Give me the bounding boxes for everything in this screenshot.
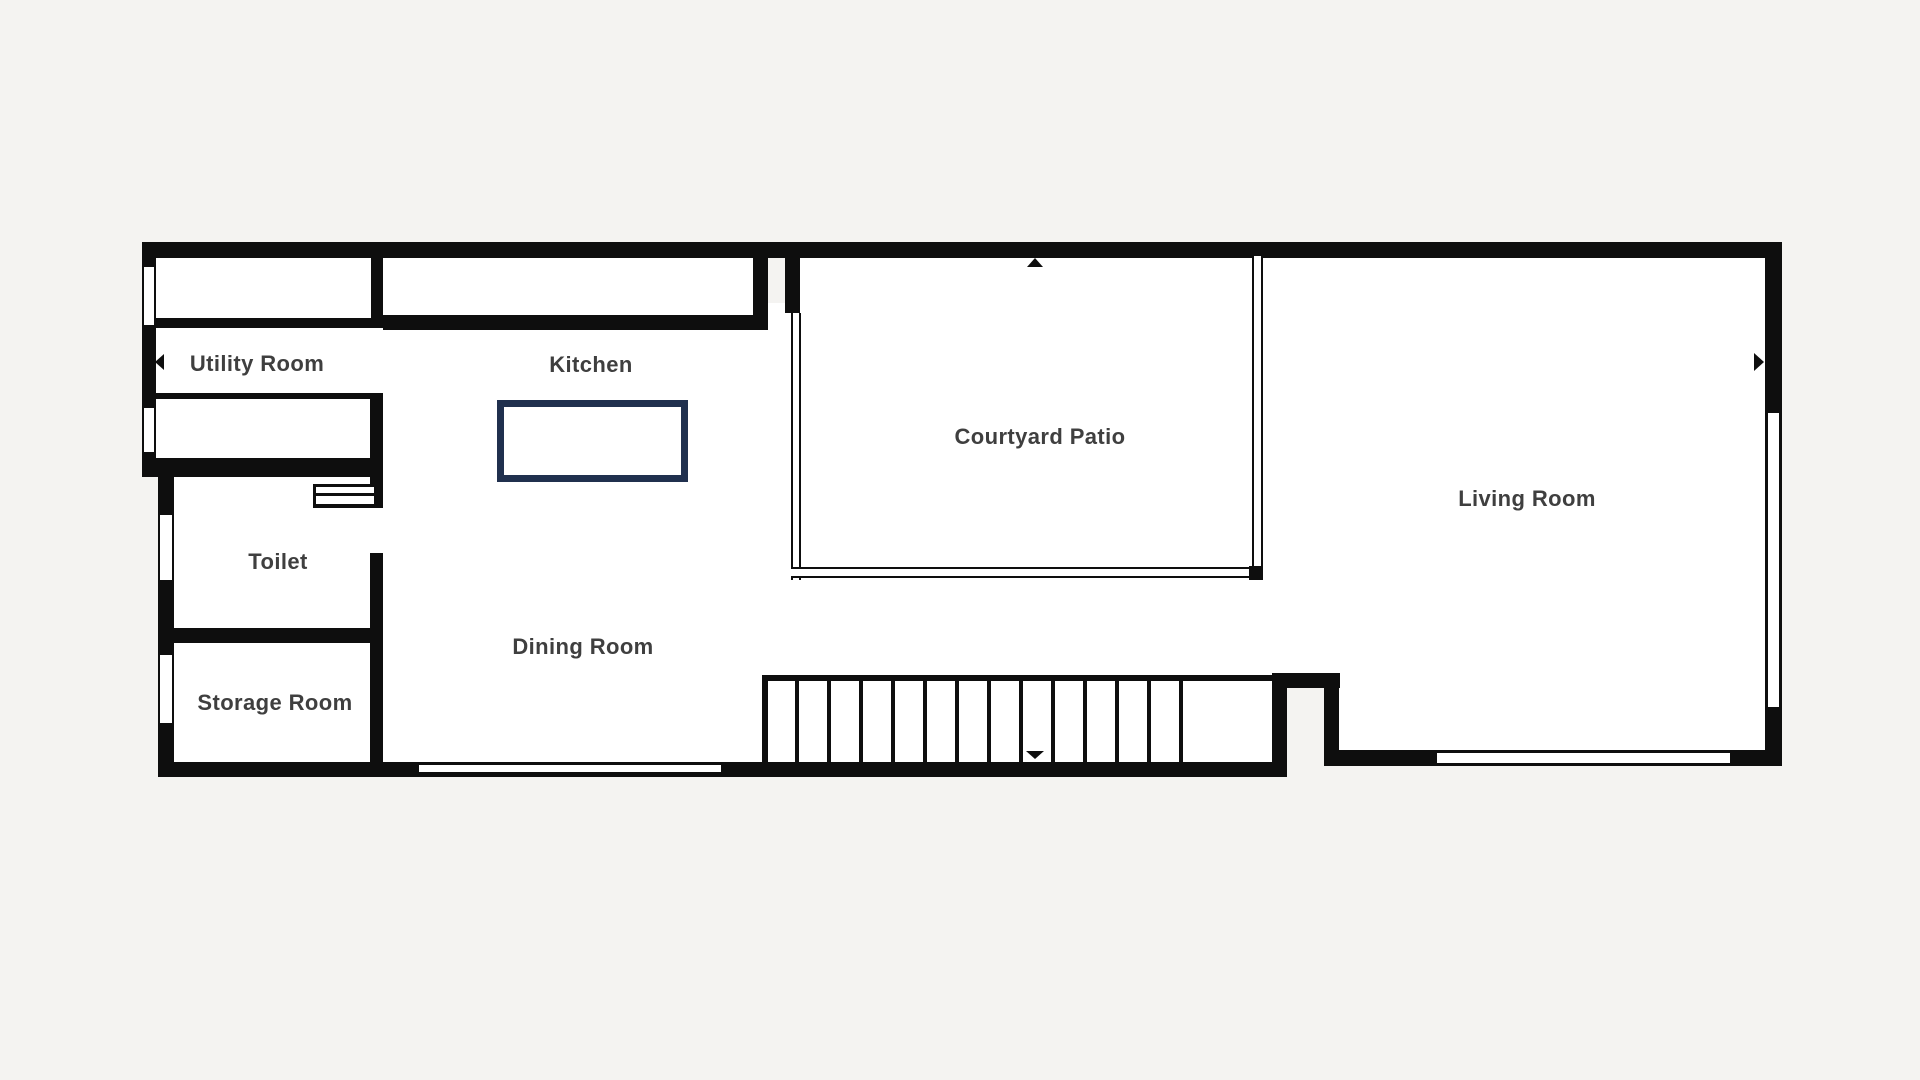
- floor-plan: Utility Room Kitchen Courtyard Patio Liv…: [0, 0, 1920, 1080]
- storage-room-label: Storage Room: [197, 690, 352, 716]
- counter-divider: [371, 242, 383, 328]
- dining-room-label: Dining Room: [512, 634, 653, 660]
- kitchen-island: [497, 400, 688, 482]
- wall-toilet-storage-divider: [158, 628, 383, 643]
- courtyard-glass-bottom: [791, 567, 1263, 578]
- courtyard-glass-left: [791, 313, 801, 580]
- living-room-label: Living Room: [1458, 486, 1596, 512]
- courtyard-entry-arrow-icon: [1027, 258, 1043, 267]
- living-entry-arrow-icon: [1754, 353, 1764, 371]
- stair-tread: [827, 681, 831, 762]
- wall-toilet-top: [142, 458, 383, 477]
- window-utility-left-2: [142, 406, 156, 454]
- window-toilet-left: [158, 513, 174, 582]
- toilet-sink-basin-bottom: [316, 496, 374, 504]
- courtyard-patio-label: Courtyard Patio: [954, 424, 1125, 450]
- stair-tread: [1051, 681, 1055, 762]
- window-dining-bottom: [417, 763, 723, 774]
- stair-tread: [1179, 681, 1183, 762]
- wall-post-slot-right: [785, 242, 800, 313]
- courtyard-glass-right: [1252, 256, 1263, 580]
- toilet-sink-basin-top: [316, 487, 374, 493]
- wall-notch-bridge: [1272, 673, 1340, 688]
- wall-toilet-right: [370, 553, 383, 628]
- window-utility-left: [142, 265, 156, 327]
- counter-kitchen-bottom-edge: [383, 315, 768, 330]
- wall-storage-right: [370, 643, 383, 762]
- utility-room-label: Utility Room: [190, 351, 324, 377]
- utility-entry-arrow-icon: [155, 354, 164, 370]
- stair-tread: [1019, 681, 1023, 762]
- wall-notch-right: [1324, 688, 1339, 766]
- wall-left-lower: [158, 458, 174, 777]
- wall-top: [142, 242, 1782, 258]
- window-storage-left: [158, 653, 174, 725]
- stair-tread: [891, 681, 895, 762]
- wall-stair-right: [1272, 688, 1287, 777]
- courtyard-corner-post: [1249, 566, 1263, 580]
- stairs-down-arrow-icon: [1026, 751, 1044, 759]
- exterior-left-step: [142, 477, 158, 782]
- counter-utility2-right-edge: [370, 393, 383, 477]
- toilet-label: Toilet: [248, 549, 307, 575]
- toilet-sink: [313, 484, 377, 508]
- stair-tread: [987, 681, 991, 762]
- window-living-bottom: [1437, 750, 1730, 766]
- stair-tread: [1115, 681, 1119, 762]
- stair-tread: [795, 681, 799, 762]
- counter-utility-bottom-edge: [156, 318, 383, 328]
- stair-tread: [923, 681, 927, 762]
- counter-utility2-top-edge: [153, 393, 378, 399]
- stair-tread: [1147, 681, 1151, 762]
- kitchen-label: Kitchen: [549, 352, 632, 378]
- exterior-bottom-notch: [1287, 688, 1324, 782]
- stair-tread: [955, 681, 959, 762]
- window-living-right: [1765, 413, 1782, 707]
- stair-tread: [859, 681, 863, 762]
- stair-tread: [1083, 681, 1087, 762]
- stair-treads: [768, 681, 1272, 762]
